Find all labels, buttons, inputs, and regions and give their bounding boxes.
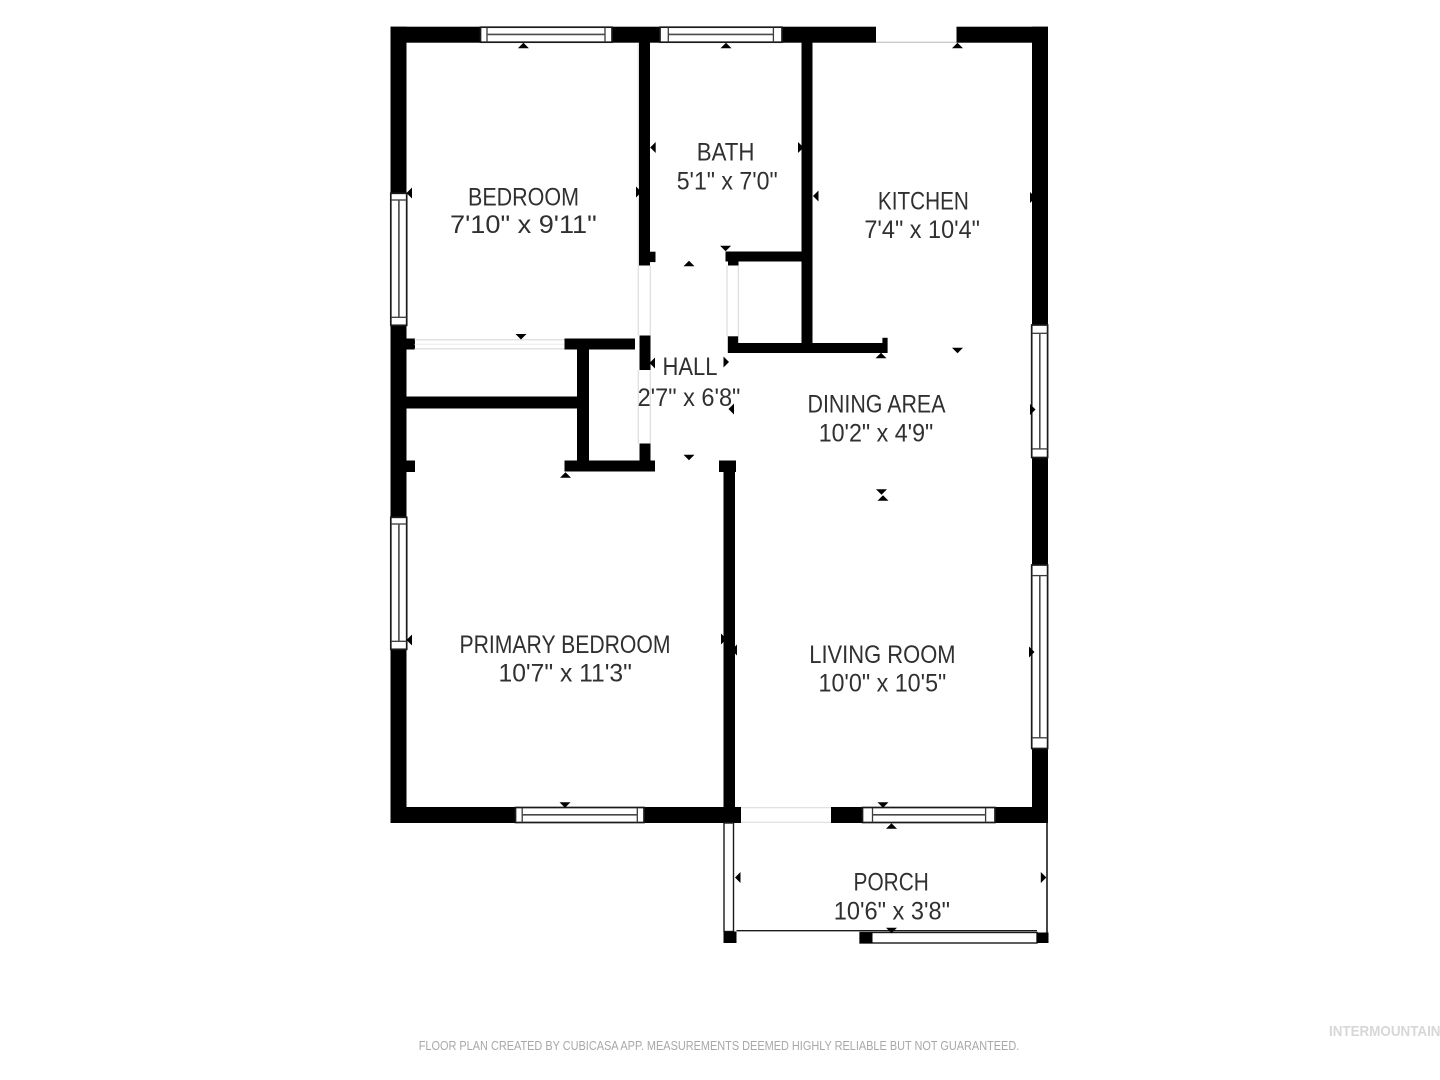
svg-text:PORCH: PORCH bbox=[854, 868, 929, 896]
svg-text:10'2" x 4'9": 10'2" x 4'9" bbox=[819, 420, 934, 448]
svg-text:10'6" x 3'8": 10'6" x 3'8" bbox=[834, 898, 950, 926]
svg-text:HALL: HALL bbox=[663, 353, 718, 381]
svg-text:7'4" x 10'4": 7'4" x 10'4" bbox=[864, 216, 980, 244]
svg-text:BATH: BATH bbox=[697, 139, 755, 167]
svg-text:DINING AREA: DINING AREA bbox=[808, 391, 946, 419]
svg-text:5'1" x 7'0": 5'1" x 7'0" bbox=[677, 168, 778, 196]
svg-text:2'7" x 6'8": 2'7" x 6'8" bbox=[638, 384, 741, 412]
svg-text:KITCHEN: KITCHEN bbox=[878, 188, 969, 216]
svg-text:FLOOR PLAN CREATED BY CUBICASA: FLOOR PLAN CREATED BY CUBICASA APP. MEAS… bbox=[419, 1038, 1020, 1053]
svg-text:LIVING ROOM: LIVING ROOM bbox=[809, 641, 955, 669]
svg-text:INTERMOUNTAIN: INTERMOUNTAIN bbox=[1329, 1023, 1440, 1040]
svg-text:BEDROOM: BEDROOM bbox=[468, 184, 579, 212]
svg-text:PRIMARY BEDROOM: PRIMARY BEDROOM bbox=[460, 631, 671, 659]
svg-text:7'10" x 9'11": 7'10" x 9'11" bbox=[450, 211, 597, 239]
svg-text:10'0" x 10'5": 10'0" x 10'5" bbox=[819, 670, 947, 698]
svg-text:10'7" x 11'3": 10'7" x 11'3" bbox=[499, 660, 632, 688]
